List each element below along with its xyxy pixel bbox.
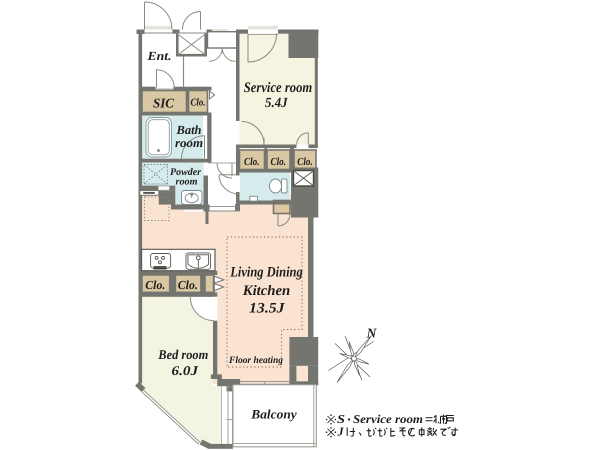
svg-text:6.0J: 6.0J	[172, 363, 199, 378]
svg-text:Clo.: Clo.	[244, 156, 260, 168]
svg-text:Clo.: Clo.	[271, 156, 287, 168]
svg-text:SIC: SIC	[153, 96, 175, 111]
svg-text:J: J	[337, 425, 345, 439]
svg-text:5.4J: 5.4J	[265, 96, 288, 111]
svg-text:room: room	[176, 176, 198, 187]
svg-text:Clo.: Clo.	[178, 278, 198, 292]
svg-text:Bed room: Bed room	[157, 347, 208, 362]
svg-text:Bath: Bath	[176, 123, 202, 137]
svg-text:13.5J: 13.5J	[249, 300, 285, 316]
svg-text:Balcony: Balcony	[250, 407, 297, 422]
svg-text:Clo.: Clo.	[191, 98, 206, 109]
svg-text:Kitchen: Kitchen	[242, 283, 291, 299]
svg-text:Ent.: Ent.	[146, 49, 171, 63]
svg-text:Floor heating: Floor heating	[228, 355, 283, 366]
svg-text:Service room: Service room	[244, 80, 313, 96]
svg-text:N: N	[366, 326, 378, 341]
svg-text:Clo.: Clo.	[145, 278, 165, 292]
svg-text:Living Dining: Living Dining	[229, 265, 302, 281]
svg-text:Service room: Service room	[353, 412, 423, 426]
svg-text:Clo.: Clo.	[297, 156, 313, 168]
svg-text:room: room	[175, 136, 203, 150]
